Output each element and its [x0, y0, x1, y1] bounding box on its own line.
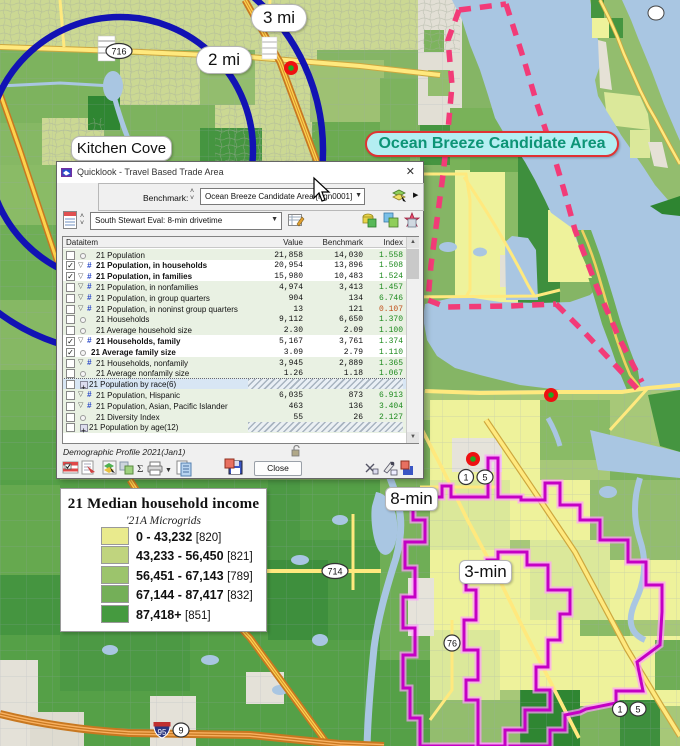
svg-text:76: 76: [447, 639, 457, 649]
svg-text:714: 714: [327, 567, 342, 577]
svg-text:5: 5: [635, 705, 640, 715]
svg-text:1: 1: [463, 473, 468, 483]
svg-text:▼: ▼: [165, 467, 172, 474]
svg-text:1: 1: [617, 705, 622, 715]
svg-text:95: 95: [158, 728, 167, 737]
svg-text:716: 716: [111, 47, 126, 57]
svg-text:Σ: Σ: [137, 463, 143, 475]
svg-text:5: 5: [482, 473, 487, 483]
svg-text:9: 9: [178, 726, 183, 736]
